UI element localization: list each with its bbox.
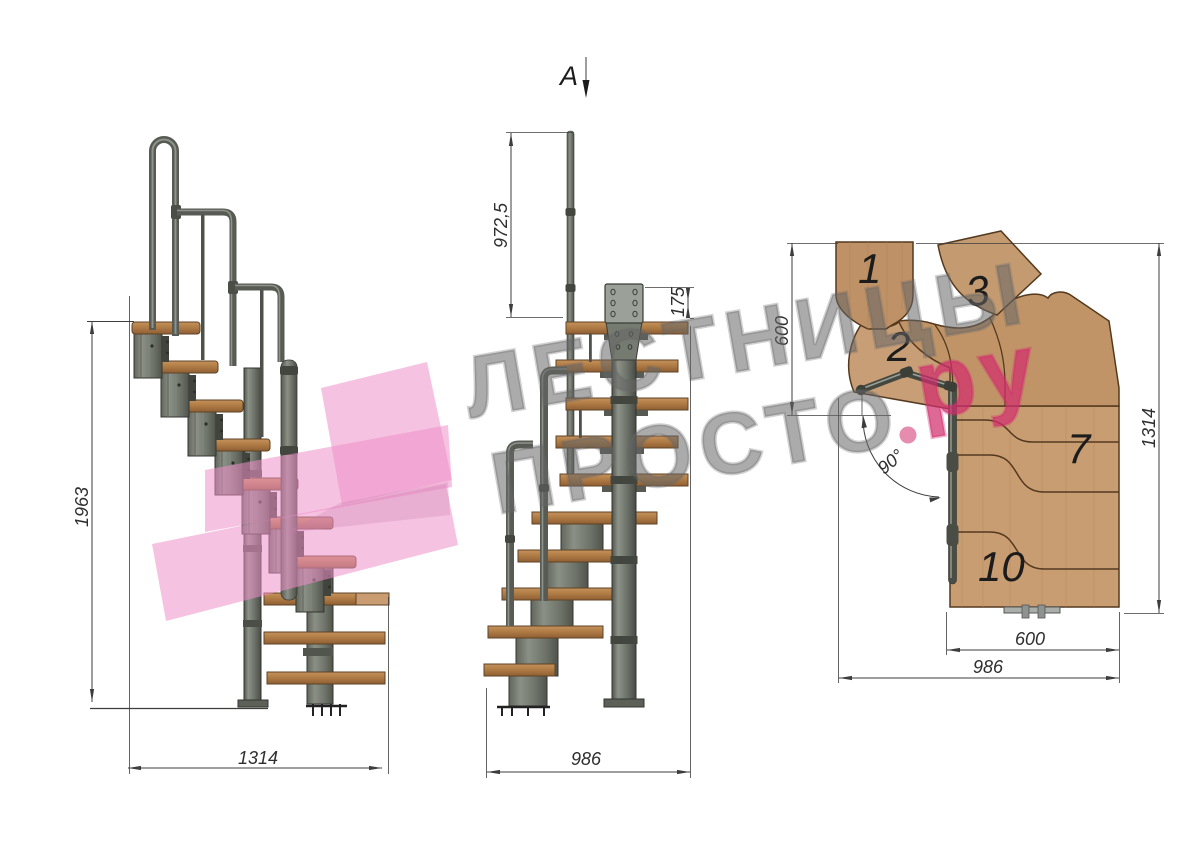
svg-text:ру: ру [907, 311, 1050, 440]
svg-text:1963: 1963 [72, 487, 92, 527]
svg-text:10: 10 [978, 543, 1025, 590]
svg-text:986: 986 [973, 657, 1004, 677]
svg-text:972,5: 972,5 [491, 202, 511, 248]
svg-text:A: A [558, 61, 578, 91]
svg-text:7: 7 [1067, 425, 1092, 472]
svg-text:1314: 1314 [1139, 408, 1159, 448]
svg-text:600: 600 [1015, 629, 1045, 649]
svg-text:986: 986 [571, 749, 602, 769]
svg-text:1314: 1314 [238, 748, 278, 768]
